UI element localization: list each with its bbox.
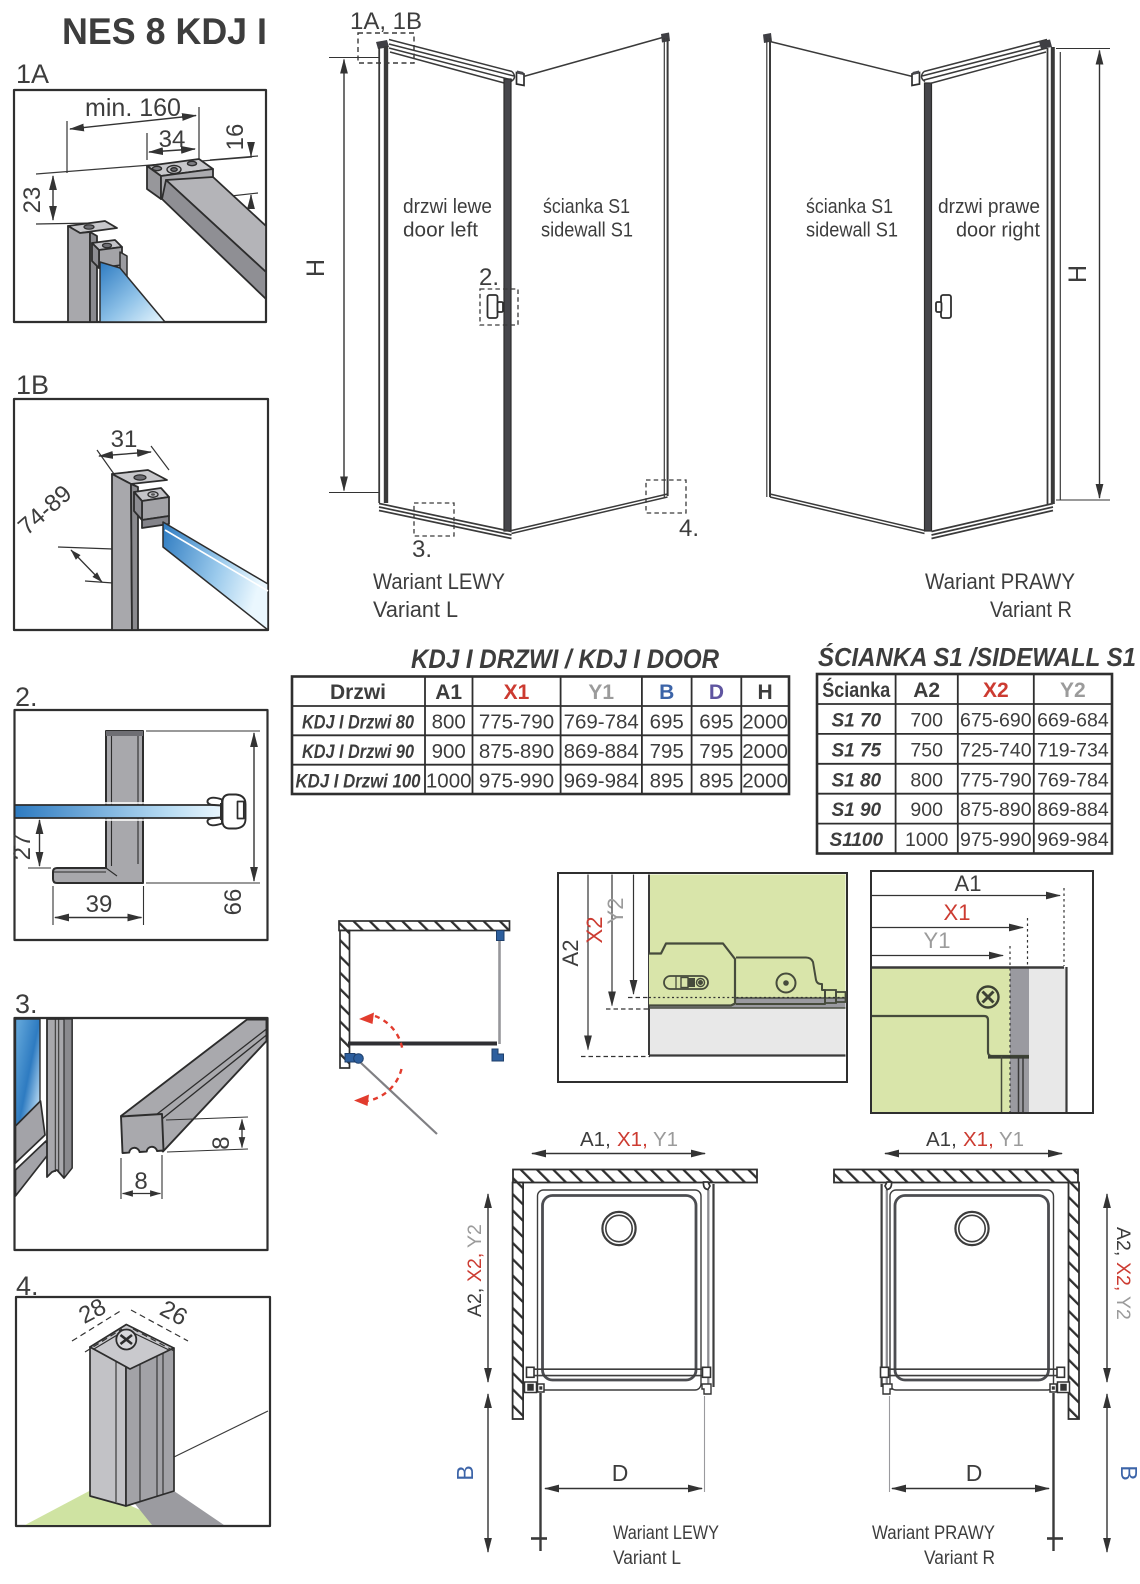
svg-text:H: H: [1064, 265, 1092, 283]
svg-text:Wariant PRAWY: Wariant PRAWY: [925, 569, 1075, 594]
svg-text:door right: door right: [956, 219, 1040, 242]
svg-text:Y2: Y2: [1112, 1296, 1134, 1320]
svg-text:23: 23: [19, 187, 46, 214]
svg-text:sidewall S1: sidewall S1: [806, 219, 898, 242]
svg-text:16: 16: [222, 124, 249, 151]
svg-text:719-734: 719-734: [1037, 739, 1109, 761]
svg-text:27: 27: [9, 834, 36, 861]
svg-text:1A, 1B: 1A, 1B: [350, 8, 422, 35]
svg-text:Variant R: Variant R: [924, 1548, 995, 1569]
svg-text:B: B: [1116, 1465, 1140, 1480]
svg-text:Y1: Y1: [653, 1128, 678, 1151]
svg-text:D: D: [966, 1460, 983, 1486]
svg-text:S1100: S1100: [830, 830, 884, 851]
svg-text:2.: 2.: [479, 264, 499, 291]
svg-text:1000: 1000: [426, 770, 472, 793]
svg-text:A2: A2: [913, 679, 940, 702]
svg-text:669-684: 669-684: [1037, 710, 1109, 732]
svg-text:A2,: A2,: [464, 1288, 486, 1317]
svg-text:795: 795: [650, 740, 684, 763]
svg-text:X2,: X2,: [464, 1253, 486, 1282]
svg-text:Y2: Y2: [464, 1224, 486, 1248]
svg-text:Y1: Y1: [999, 1128, 1024, 1151]
svg-text:drzwi lewe: drzwi lewe: [403, 195, 492, 218]
svg-text:800: 800: [910, 769, 943, 791]
svg-text:Wariant LEWY: Wariant LEWY: [373, 569, 505, 594]
svg-text:Y2: Y2: [1060, 679, 1086, 702]
svg-text:sidewall S1: sidewall S1: [541, 219, 633, 242]
svg-text:drzwi prawe: drzwi prawe: [938, 195, 1040, 218]
svg-text:675-690: 675-690: [960, 710, 1032, 732]
svg-text:KDJ I Drzwi 80: KDJ I Drzwi 80: [302, 713, 414, 734]
svg-text:ścianka S1: ścianka S1: [806, 195, 893, 218]
svg-text:B: B: [659, 681, 674, 704]
svg-text:X2: X2: [983, 679, 1009, 702]
svg-text:975-990: 975-990: [960, 829, 1032, 851]
svg-text:875-890: 875-890: [479, 740, 554, 763]
svg-text:969-984: 969-984: [1037, 829, 1109, 851]
svg-text:A2: A2: [558, 940, 583, 967]
svg-text:KDJ I Drzwi 90: KDJ I Drzwi 90: [302, 742, 414, 763]
svg-text:D: D: [709, 681, 724, 704]
svg-text:869-884: 869-884: [564, 740, 639, 763]
svg-text:KDJ I Drzwi 100: KDJ I Drzwi 100: [296, 772, 421, 793]
svg-text:8: 8: [208, 1136, 235, 1149]
svg-text:695: 695: [650, 711, 684, 734]
svg-text:A1: A1: [955, 871, 982, 896]
svg-text:Ścianka: Ścianka: [822, 678, 890, 702]
svg-text:Variant L: Variant L: [373, 597, 458, 622]
svg-text:2000: 2000: [742, 711, 788, 734]
svg-text:875-890: 875-890: [960, 799, 1032, 821]
svg-text:895: 895: [699, 770, 733, 793]
svg-text:H: H: [302, 259, 330, 277]
svg-text:Wariant LEWY: Wariant LEWY: [613, 1523, 719, 1544]
svg-text:X1,: X1,: [617, 1128, 648, 1151]
svg-text:1A: 1A: [16, 59, 49, 89]
svg-text:1000: 1000: [905, 829, 949, 851]
svg-text:Drzwi: Drzwi: [330, 681, 386, 704]
svg-text:3.: 3.: [412, 536, 432, 563]
svg-text:775-790: 775-790: [960, 769, 1032, 791]
svg-text:X2,: X2,: [1112, 1262, 1134, 1291]
svg-text:X1: X1: [944, 900, 971, 925]
svg-text:34: 34: [159, 126, 186, 153]
svg-text:S1 90: S1 90: [831, 800, 881, 821]
svg-text:S1 70: S1 70: [831, 711, 881, 732]
svg-text:775-790: 775-790: [479, 711, 554, 734]
svg-text:NES 8 KDJ I: NES 8 KDJ I: [62, 11, 267, 52]
svg-text:S1 75: S1 75: [831, 740, 881, 761]
svg-text:725-740: 725-740: [960, 739, 1032, 761]
svg-text:Y1: Y1: [924, 928, 951, 953]
svg-text:D: D: [612, 1460, 629, 1486]
svg-text:A1: A1: [435, 681, 462, 704]
svg-text:900: 900: [432, 740, 466, 763]
svg-text:769-784: 769-784: [1037, 769, 1109, 791]
svg-text:769-784: 769-784: [564, 711, 639, 734]
svg-text:X1,: X1,: [963, 1128, 994, 1151]
svg-text:KDJ I DRZWI / KDJ I DOOR: KDJ I DRZWI / KDJ I DOOR: [411, 644, 719, 674]
svg-text:H: H: [758, 681, 773, 704]
svg-text:2000: 2000: [742, 740, 788, 763]
svg-text:4.: 4.: [679, 515, 699, 542]
svg-text:3.: 3.: [15, 989, 38, 1019]
svg-text:A2,: A2,: [1112, 1227, 1134, 1256]
svg-text:X1: X1: [504, 681, 530, 704]
svg-text:39: 39: [86, 891, 113, 918]
svg-text:2.: 2.: [15, 682, 38, 712]
svg-text:ścianka S1: ścianka S1: [543, 195, 630, 218]
svg-text:ŚCIANKA S1 /SIDEWALL S1: ŚCIANKA S1 /SIDEWALL S1: [818, 642, 1136, 672]
svg-text:969-984: 969-984: [564, 770, 639, 793]
svg-text:A1,: A1,: [926, 1128, 957, 1151]
svg-text:A1,: A1,: [580, 1128, 611, 1151]
svg-text:66: 66: [220, 889, 247, 916]
svg-text:1B: 1B: [16, 370, 49, 400]
svg-text:Wariant PRAWY: Wariant PRAWY: [872, 1523, 995, 1544]
svg-text:31: 31: [111, 426, 138, 453]
svg-text:8: 8: [134, 1168, 147, 1195]
svg-text:Y2: Y2: [603, 898, 628, 925]
svg-text:B: B: [452, 1465, 478, 1480]
svg-text:975-990: 975-990: [479, 770, 554, 793]
svg-text:door left: door left: [403, 219, 478, 242]
svg-text:695: 695: [699, 711, 733, 734]
svg-text:800: 800: [432, 711, 466, 734]
svg-text:Variant R: Variant R: [990, 597, 1072, 622]
svg-text:Y1: Y1: [588, 681, 614, 704]
svg-text:S1 80: S1 80: [831, 770, 881, 791]
svg-text:min. 160: min. 160: [85, 94, 181, 122]
svg-text:2000: 2000: [742, 770, 788, 793]
svg-text:900: 900: [910, 799, 943, 821]
svg-text:Variant L: Variant L: [613, 1548, 681, 1569]
svg-text:750: 750: [910, 739, 943, 761]
svg-text:795: 795: [699, 740, 733, 763]
svg-text:869-884: 869-884: [1037, 799, 1109, 821]
svg-text:700: 700: [910, 710, 943, 732]
svg-text:895: 895: [650, 770, 684, 793]
